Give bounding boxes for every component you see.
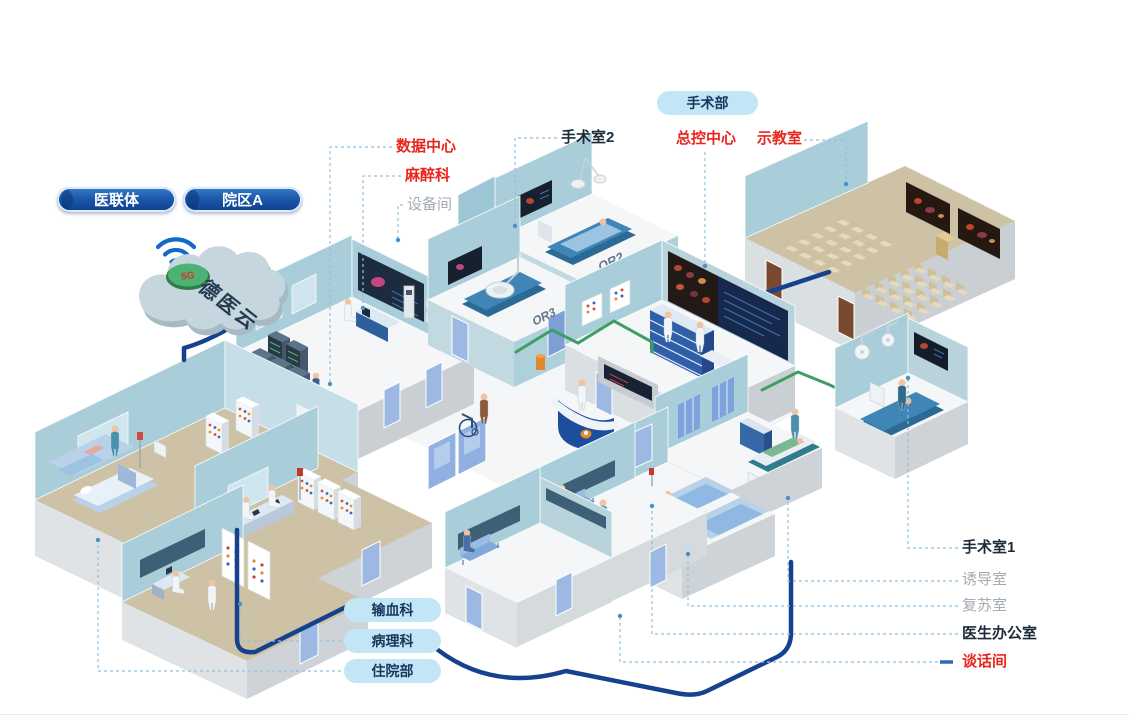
bottom-divider	[0, 714, 1129, 715]
pill-campus-a-label: 院区A	[222, 189, 263, 210]
label-equipment-room: 设备间	[407, 197, 452, 212]
pill-medical-alliance[interactable]: 医联体	[57, 187, 176, 212]
pill-inpatient[interactable]: 住院部	[344, 659, 441, 683]
label-or-2: 手术室2	[561, 130, 614, 145]
label-data-center: 数据中心	[396, 139, 456, 154]
pill-surgery-department-label: 手术部	[687, 93, 729, 113]
pill-pathology-label: 病理科	[372, 631, 414, 651]
label-or-1: 手术室1	[962, 540, 1015, 555]
iv-bag	[297, 468, 303, 476]
pill-pathology[interactable]: 病理科	[344, 629, 441, 653]
pill-blood-transfusion-label: 输血科	[372, 600, 414, 620]
pill-medical-alliance-label: 医联体	[94, 189, 139, 210]
nurse	[791, 409, 799, 440]
label-doctor-office: 医生办公室	[962, 626, 1037, 641]
isometric-scene: OR2 OR3	[0, 0, 1129, 721]
label-demo-classroom: 示教室	[757, 131, 802, 146]
5g-badge-label: 5G	[181, 270, 196, 283]
label-master-control: 总控中心	[676, 131, 736, 146]
pill-inpatient-label: 住院部	[372, 661, 414, 681]
cloud-icon: 5G 德医云	[139, 246, 288, 335]
label-induction-room: 诱导室	[962, 572, 1007, 587]
trash-bin	[536, 356, 545, 370]
cloud-platform: 5G 德医云	[139, 239, 288, 335]
pill-campus-a[interactable]: 院区A	[183, 187, 302, 212]
label-talk-room: 谈话间	[962, 654, 1007, 669]
hospital-network-diagram: OR2 OR3	[0, 0, 1129, 721]
iv-bag	[649, 468, 654, 475]
iv-bag	[137, 432, 143, 440]
leader-equipment-room	[398, 205, 403, 240]
pill-blood-transfusion[interactable]: 输血科	[344, 598, 441, 622]
label-anesthesia: 麻醉科	[405, 168, 450, 183]
leader-induction-room	[788, 498, 958, 581]
label-recovery-room: 复苏室	[962, 598, 1007, 613]
pill-surgery-department[interactable]: 手术部	[657, 91, 758, 115]
classroom-door	[838, 296, 854, 340]
